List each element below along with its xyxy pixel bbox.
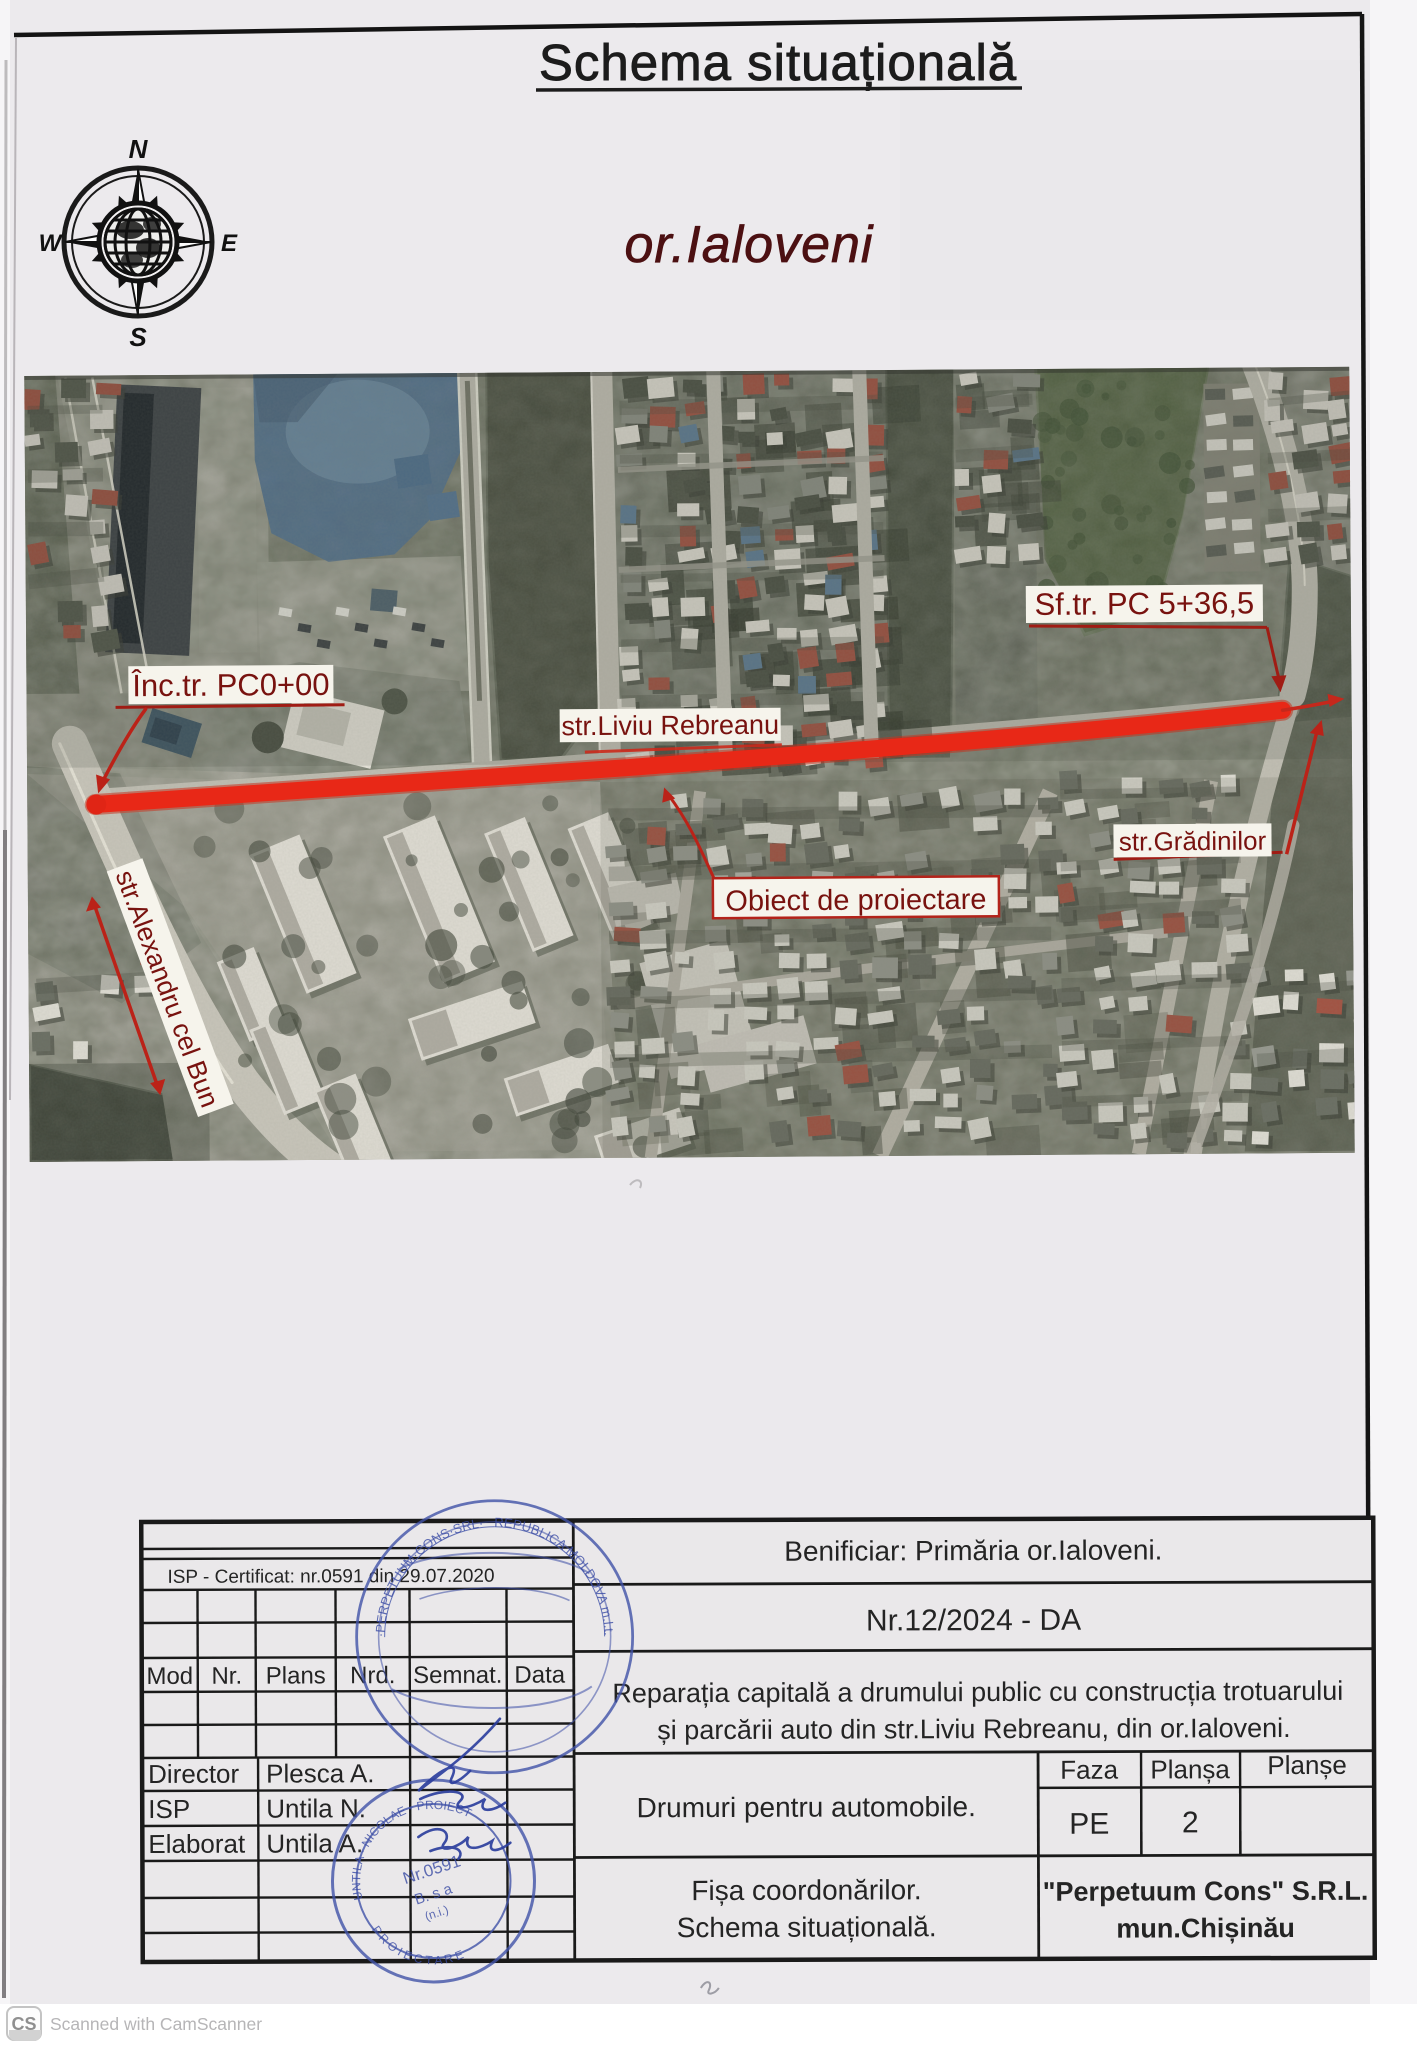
svg-text:ISP: ISP (148, 1794, 190, 1824)
svg-text:Planșe: Planșe (1267, 1750, 1347, 1780)
svg-text:Plans: Plans (266, 1662, 326, 1689)
svg-text:or.Ialoveni: or.Ialoveni (625, 216, 874, 274)
svg-text:str.Liviu Rebreanu: str.Liviu Rebreanu (561, 710, 779, 742)
svg-text:W: W (39, 230, 64, 257)
svg-text:Untila A.: Untila A. (266, 1828, 363, 1858)
svg-text:Plesca A.: Plesca A. (266, 1758, 375, 1788)
svg-text:Faza: Faza (1060, 1755, 1118, 1785)
svg-text:CS: CS (11, 2014, 36, 2034)
svg-text:S: S (129, 322, 147, 352)
svg-text:Reparația capitală a drumului: Reparația capitală a drumului public cu … (612, 1676, 1343, 1709)
svg-text:Înc.tr. PC0+00: Înc.tr. PC0+00 (131, 667, 330, 703)
svg-text:ISP - Certificat: nr.0591 d: ISP - Certificat: nr.0591 din 29.07.2020 (167, 1566, 494, 1588)
svg-text:Director: Director (148, 1759, 239, 1789)
svg-text:"Perpetuum Cons" S.R.L.: "Perpetuum Cons" S.R.L. (1043, 1876, 1369, 1907)
svg-text:Fișa coordonărilor.: Fișa coordonărilor. (691, 1874, 921, 1906)
svg-text:Obiect de proiectare: Obiect de proiectare (725, 884, 986, 918)
svg-text:Untila N.: Untila N. (266, 1793, 366, 1823)
svg-text:Nr.: Nr. (211, 1663, 242, 1690)
svg-text:Nr.12/2024 - DA: Nr.12/2024 - DA (866, 1604, 1081, 1638)
svg-text:2: 2 (1182, 1806, 1199, 1839)
svg-text:mun.Chișinău: mun.Chișinău (1116, 1913, 1295, 1944)
svg-text:Planșa: Planșa (1150, 1754, 1230, 1784)
svg-text:Semnat.: Semnat. (413, 1662, 502, 1689)
svg-text:PE: PE (1069, 1808, 1109, 1841)
svg-text:Scanned with CamScanner: Scanned with CamScanner (50, 2014, 262, 2034)
svg-text:Sf.tr. PC 5+36,5: Sf.tr. PC 5+36,5 (1034, 585, 1254, 622)
svg-text:Schema situațională.: Schema situațională. (677, 1911, 937, 1943)
svg-text:Mod: Mod (146, 1663, 193, 1690)
svg-text:E: E (221, 230, 238, 257)
svg-text:N: N (129, 134, 149, 164)
svg-text:Data: Data (514, 1662, 565, 1689)
svg-text:Schema situațională: Schema situațională (539, 34, 1017, 91)
svg-text:Elaborat: Elaborat (148, 1829, 246, 1859)
svg-text:și parcării auto din str.Liviu: și parcării auto din str.Liviu Rebreanu,… (657, 1713, 1290, 1745)
svg-text:Benificiar: Primăria or.Ialove: Benificiar: Primăria or.Ialoveni. (784, 1534, 1162, 1566)
svg-text:Drumuri pentru automobile.: Drumuri pentru automobile. (637, 1791, 976, 1823)
svg-text:str.Grădinilor: str.Grădinilor (1119, 826, 1267, 857)
